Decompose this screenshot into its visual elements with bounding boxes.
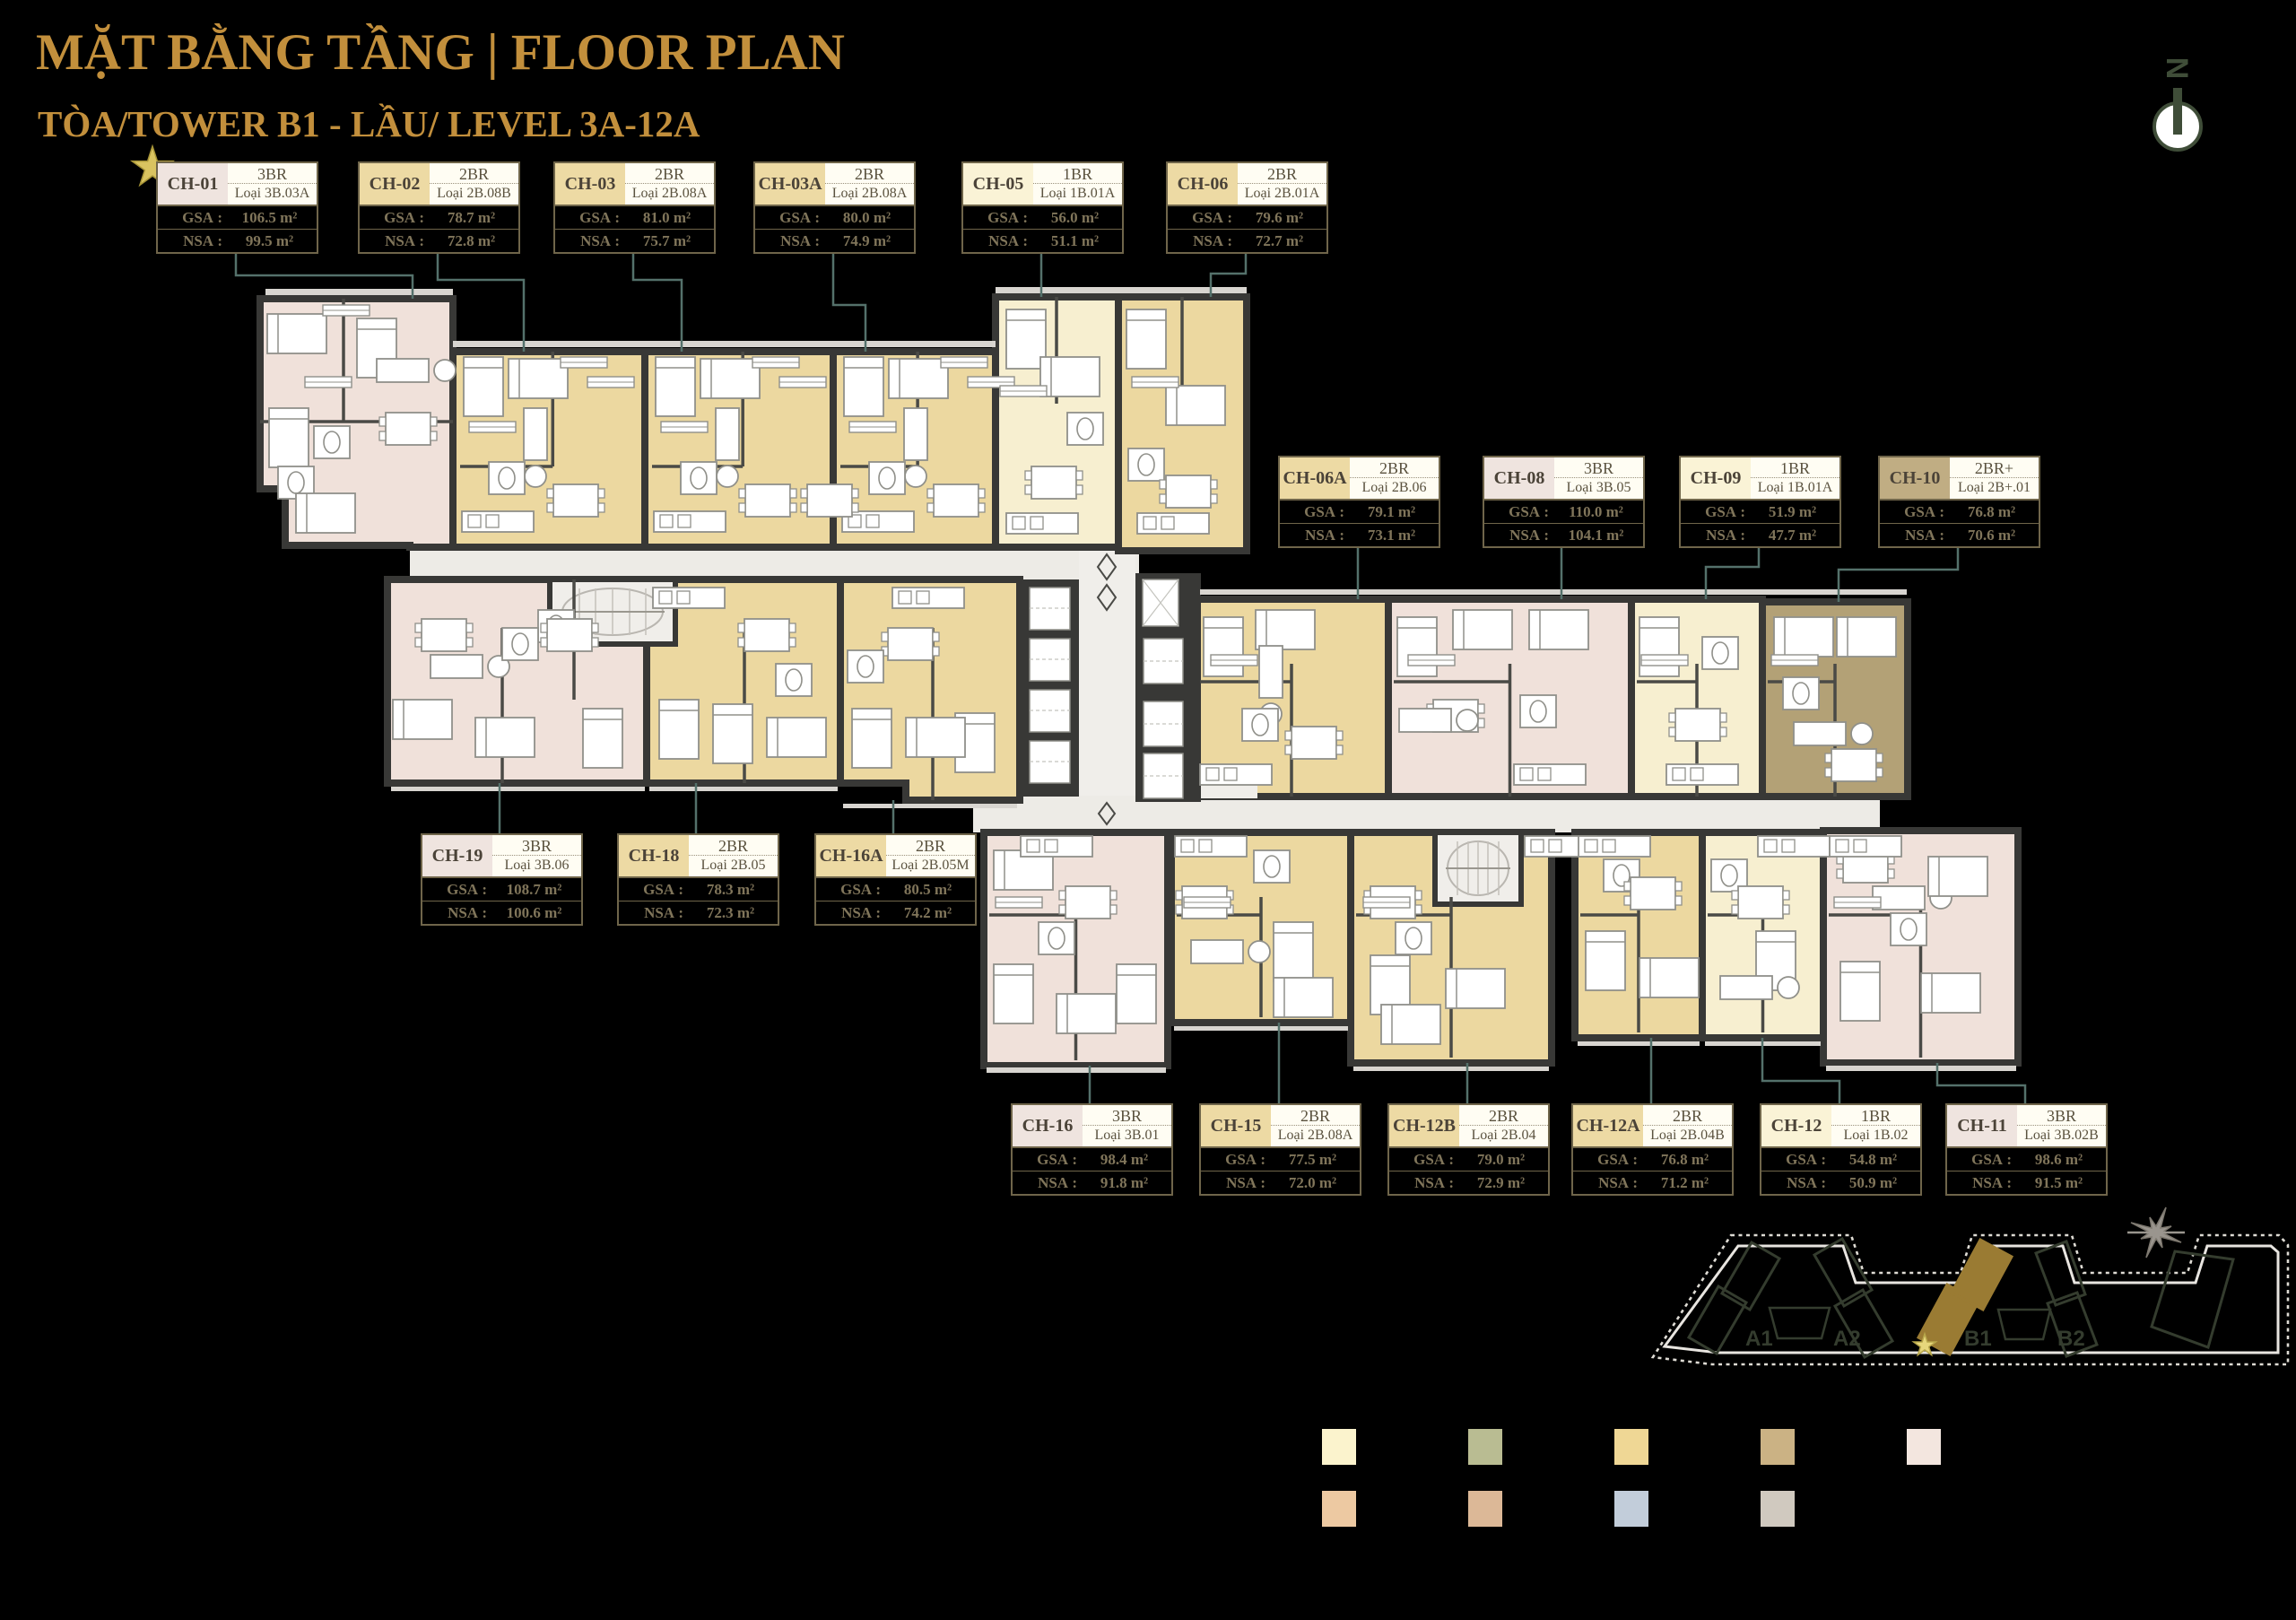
svg-text:B1: B1: [1964, 1327, 1992, 1351]
svg-text:A1: A1: [1745, 1327, 1773, 1351]
svg-text:A2: A2: [1833, 1327, 1861, 1351]
svg-text:B2: B2: [2057, 1327, 2085, 1351]
svg-text:N: N: [2160, 57, 2194, 80]
